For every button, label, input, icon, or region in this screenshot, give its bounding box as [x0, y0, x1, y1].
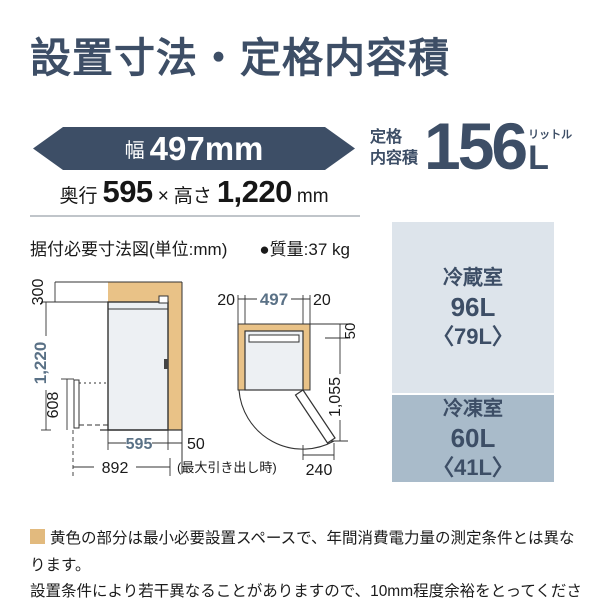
diagram-caption-row: 据付必要寸法図(単位:mm) ●質量:37 kg [30, 235, 350, 260]
freezer-compartment-capacity: 60L [451, 422, 496, 455]
fridge-compartment-sub: 〈79L〉 [432, 324, 514, 350]
width-label: 幅 [125, 134, 145, 163]
width-banner: 幅 497 mm [33, 127, 355, 170]
page-title: 設置寸法・定格内容積 [30, 24, 450, 84]
depth-height-line: 奥行 595 × 高さ 1,220 mm [33, 174, 355, 210]
dim-depth-door-open: 1,055 [327, 377, 344, 417]
footnote-line1-text: 黄色の部分は最小必要設置スペースで、年間消費電力量の測定条件とは異なります。 [30, 530, 575, 574]
dim-drawer-open-height: 608 [45, 392, 62, 419]
yellow-legend-icon [30, 529, 45, 544]
fridge-compartment-box: 冷蔵室 96L 〈79L〉 [392, 222, 554, 393]
depth-label: 奥行 [59, 181, 97, 208]
height-value: 1,220 [217, 174, 292, 210]
width-value: 497 [150, 130, 205, 168]
hinge-cover [159, 296, 168, 303]
dimension-unit: mm [297, 186, 329, 208]
height-label: 高さ [174, 181, 212, 208]
mass-label: ●質量:37 kg [259, 235, 350, 260]
spec-sheet: 設置寸法・定格内容積 幅 497 mm 奥行 595 × 高さ 1,220 mm… [0, 0, 600, 600]
dim-rear-space-top: 50 [342, 323, 359, 340]
capacity-unit-block: リットル L [528, 126, 572, 174]
dim-rear-space: 50 [187, 436, 205, 453]
door-closed-bar [249, 335, 299, 342]
diagram-caption: 据付必要寸法図(単位:mm) [30, 235, 227, 260]
dim-body-width: 497 [260, 290, 288, 309]
rated-capacity: 定格 内容積 156 リットル L [370, 116, 572, 177]
installation-diagrams: 300 1,220 608 595 50 892 (最大引き出し時) [30, 262, 390, 514]
capacity-label-line2: 内容積 [370, 149, 418, 170]
divider-rule [30, 215, 360, 217]
dim-space-above: 300 [30, 279, 47, 306]
capacity-label-line1: 定格 [370, 128, 418, 149]
drawer-front [74, 380, 79, 428]
freezer-compartment-name: 冷凍室 [443, 396, 503, 422]
top-view-diagram: 20 497 20 50 1,055 240 [217, 290, 359, 479]
dim-side-space-right: 20 [313, 292, 331, 309]
min-space-rear [168, 282, 182, 430]
footnote-line2: 設置条件により若干異なることがありますので、10mm程度余裕をとってください。 [30, 579, 582, 600]
depth-value: 595 [102, 174, 152, 210]
capacity-label: 定格 内容積 [370, 128, 418, 170]
footnote: 黄色の部分は最小必要設置スペースで、年間消費電力量の測定条件とは異なります。 設… [30, 526, 582, 600]
dim-body-height: 1,220 [31, 342, 50, 385]
dim-door-protrusion: 240 [306, 462, 333, 479]
door-latch [164, 359, 168, 369]
fridge-compartment-capacity: 96L [451, 291, 496, 324]
dim-side-space-left: 20 [217, 292, 235, 309]
dim-drawer-note: (最大引き出し時) [177, 460, 277, 475]
fridge-compartment-name: 冷蔵室 [443, 265, 503, 291]
width-unit: mm [205, 130, 264, 168]
fridge-side-body [108, 302, 168, 430]
compartment-panel: 冷蔵室 96L 〈79L〉 冷凍室 60L 〈41L〉 [392, 222, 554, 482]
footnote-line1: 黄色の部分は最小必要設置スペースで、年間消費電力量の測定条件とは異なります。 [30, 526, 582, 579]
freezer-compartment-sub: 〈41L〉 [432, 455, 514, 481]
capacity-value: 156 [424, 116, 525, 177]
freezer-compartment-box: 冷凍室 60L 〈41L〉 [392, 395, 554, 482]
capacity-unit: L [528, 143, 549, 174]
dim-body-depth: 595 [126, 436, 153, 453]
dim-depth-drawer-open: 892 [102, 460, 129, 477]
times-sign: × [158, 186, 169, 208]
